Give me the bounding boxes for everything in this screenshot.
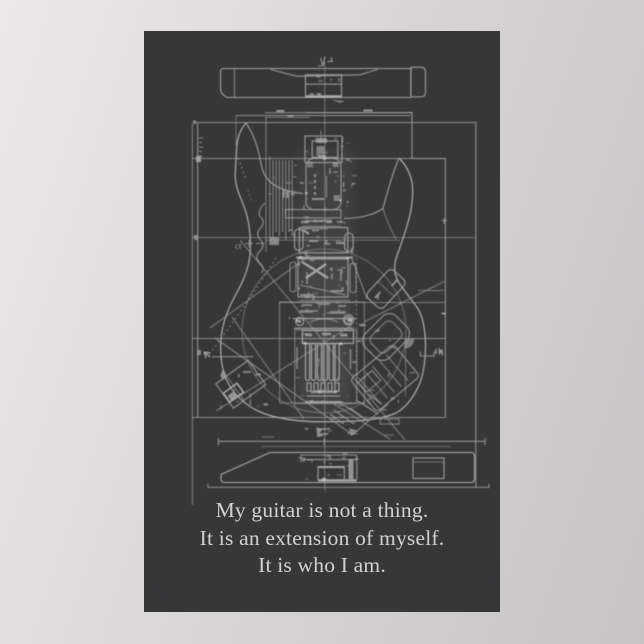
svg-text:ct: ct xyxy=(235,241,242,251)
